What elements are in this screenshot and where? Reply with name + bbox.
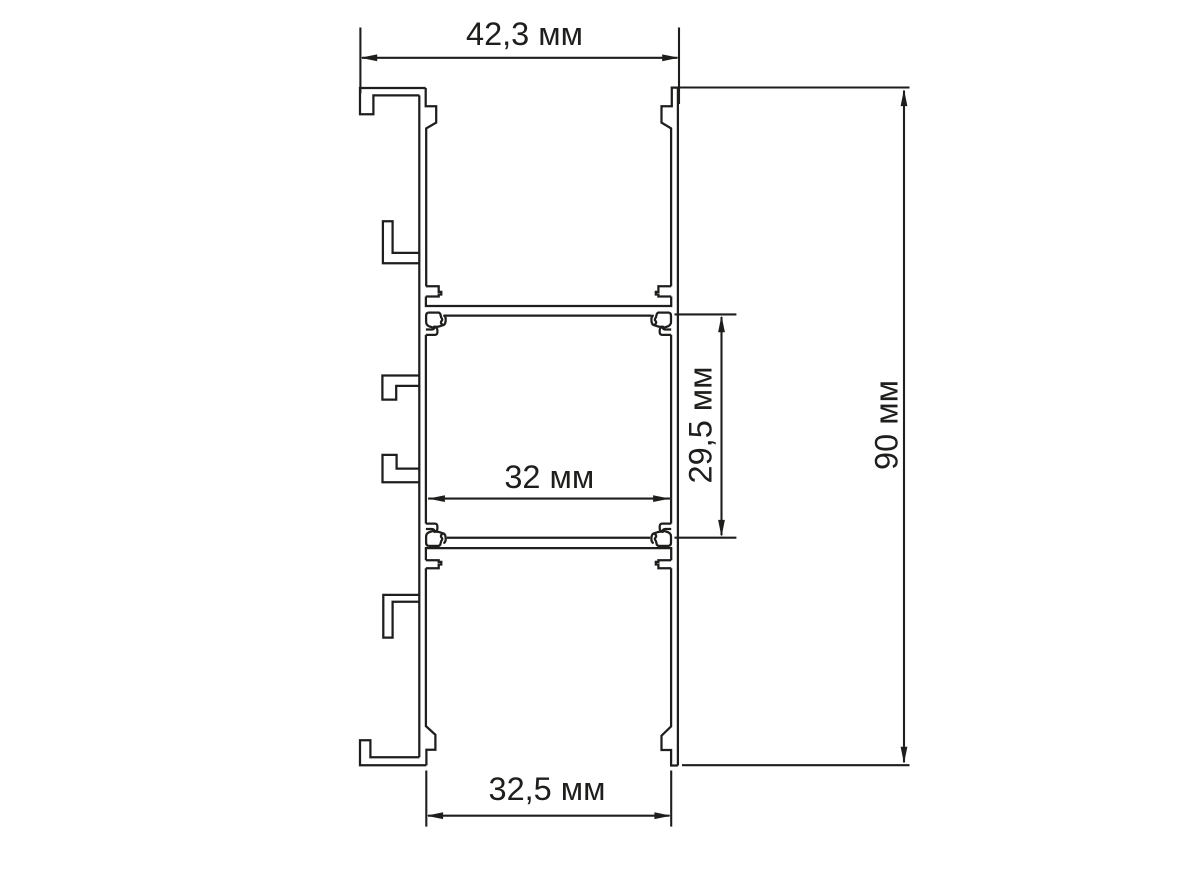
svg-text:32 мм: 32 мм — [504, 459, 594, 495]
svg-text:32,5 мм: 32,5 мм — [489, 771, 606, 807]
svg-text:90 мм: 90 мм — [869, 380, 905, 470]
svg-text:29,5 мм: 29,5 мм — [683, 367, 719, 484]
svg-text:42,3 мм: 42,3 мм — [466, 16, 583, 52]
